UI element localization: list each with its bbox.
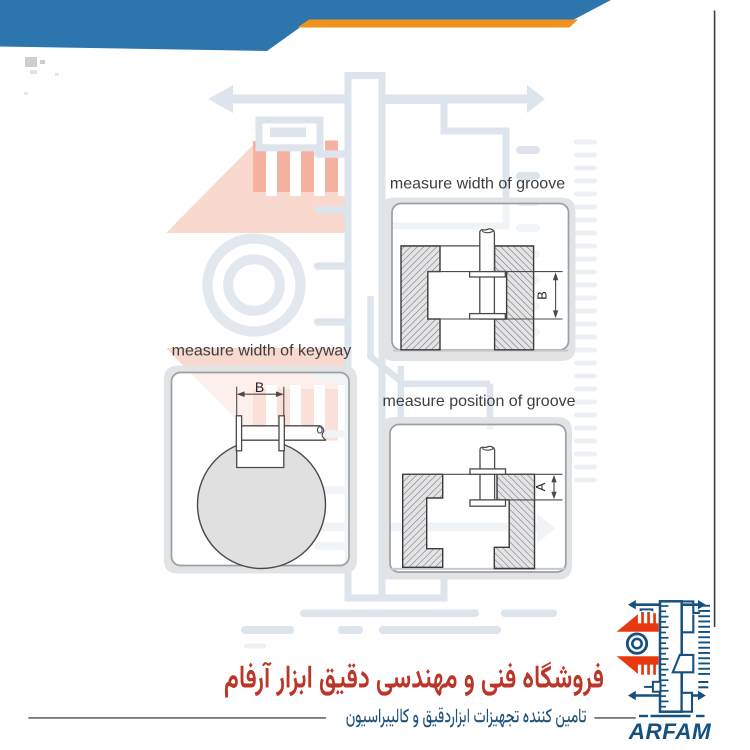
svg-text:B: B <box>255 379 264 395</box>
svg-text:measure width of groove: measure width of groove <box>390 175 565 192</box>
svg-text:ARFAM: ARFAM <box>628 719 712 744</box>
svg-text:A: A <box>533 482 548 491</box>
svg-text:B: B <box>535 291 550 300</box>
svg-text:measure position of groove: measure position of groove <box>383 393 576 410</box>
svg-text:measure width of keyway: measure width of keyway <box>172 343 352 360</box>
